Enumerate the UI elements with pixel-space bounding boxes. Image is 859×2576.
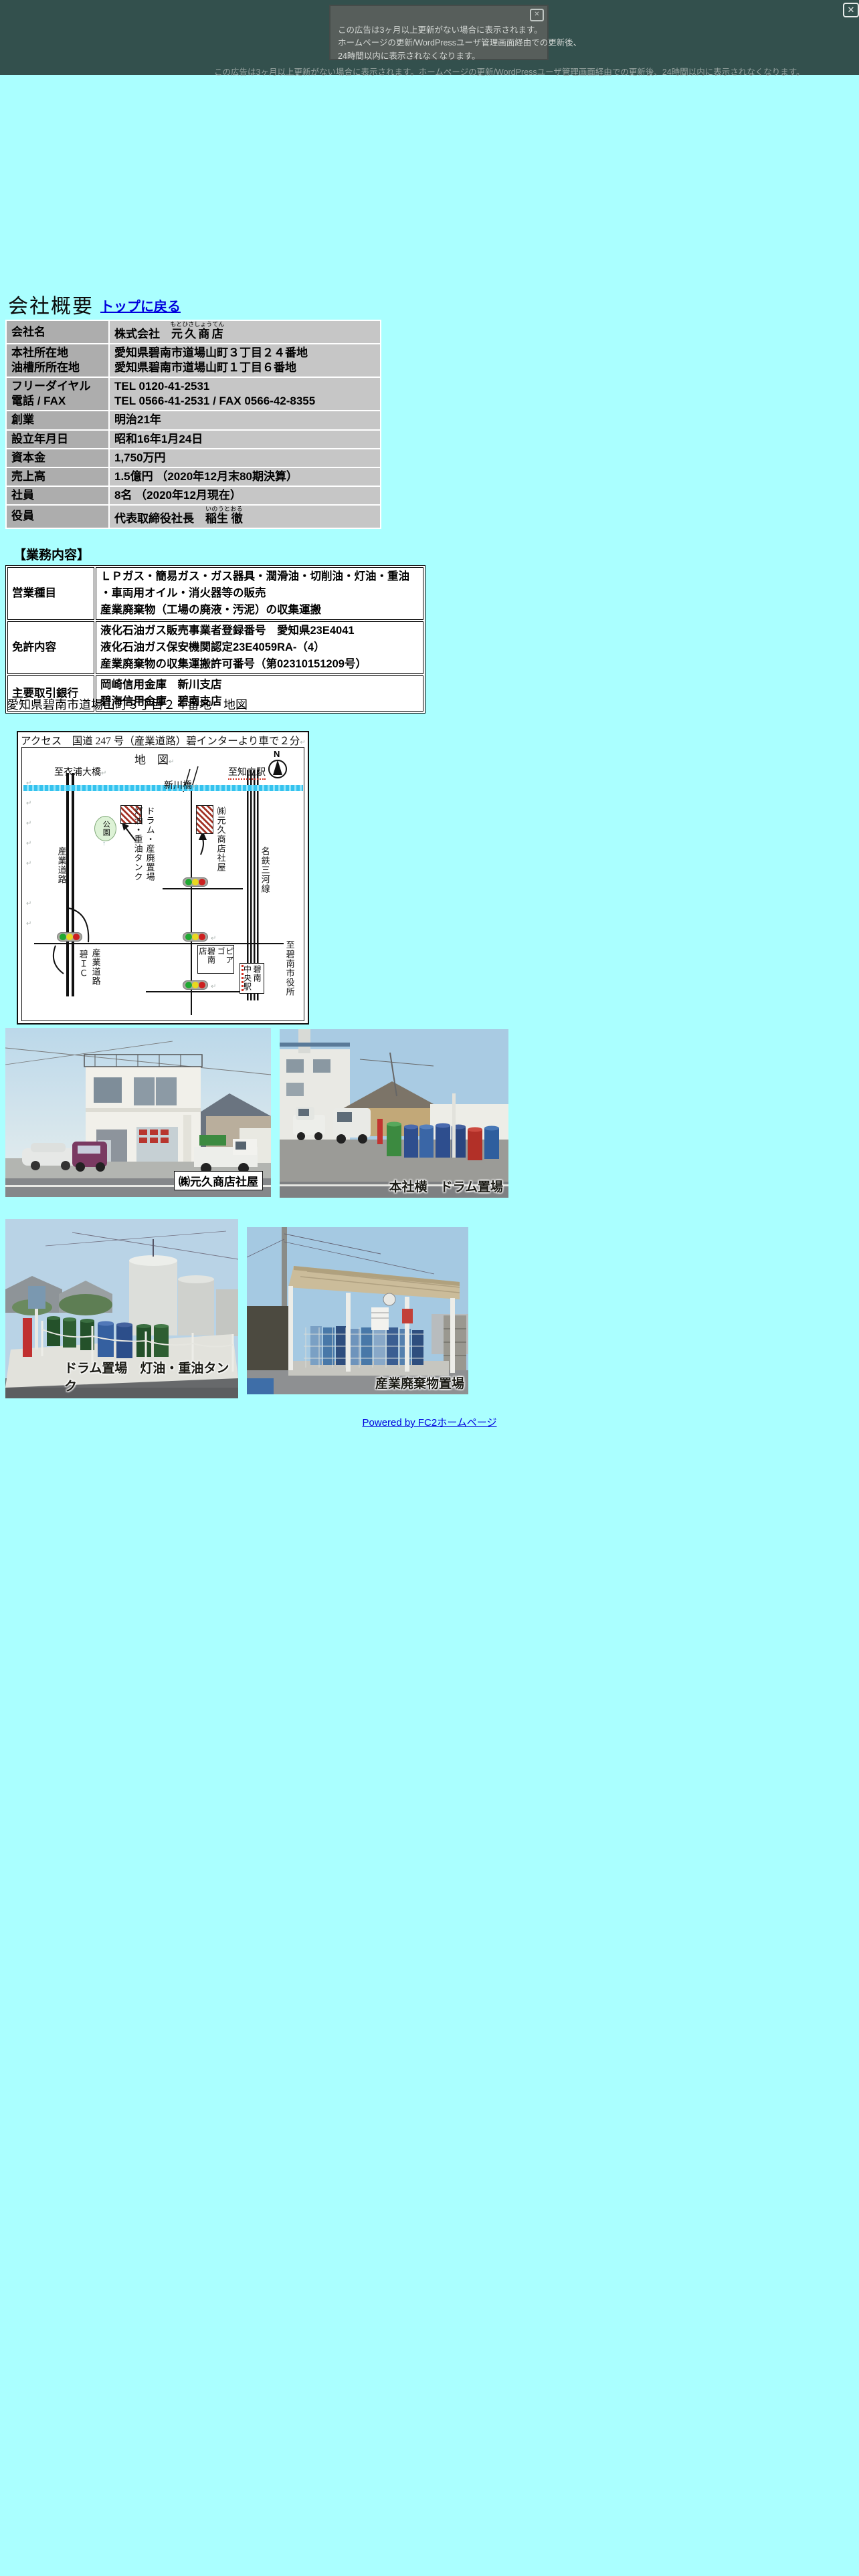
company-name: 元久商店もとひさしょうてん [171,328,224,340]
pilcrow-mark: ↵ [26,780,31,787]
company-table: 会社名 株式会社 元久商店もとひさしょうてん 本社所在地油槽所所在地 愛知県碧南… [5,320,381,529]
table-row: 売上高 1.5億円 （2020年12月末80期決算） [7,468,380,486]
map-drawing: 地 図↵ N 至衣浦大橋↵ 至知立駅 新川橋↵ ドラム・産廃置場 灯油・重油タン… [21,747,304,1021]
pilcrow-mark: ↵ [26,820,31,827]
company-prefix: 株式会社 [114,328,160,340]
table-row: 資本金 1,750万円 [7,449,380,467]
compass-north-label: N [274,749,280,759]
river-line [23,785,303,791]
back-to-top-link[interactable]: トップに戻る [100,296,181,315]
business-items-cell: ＬＰガス・簡易ガス・ガス器具・潤滑油・切削油・灯油・重油 ・車両用オイル・消火器… [96,567,423,620]
license-cell: 液化石油ガス販売事業者登録番号 愛知県23E4041 液化石油ガス保安機関認定2… [96,621,423,674]
station-label-1: 碧南 [253,965,262,992]
label-to-kinuura: 至衣浦大橋↵ [54,765,106,778]
label-meitetsu-line: 名鉄三河線 [260,847,270,903]
banner-close-icon[interactable]: ✕ [843,3,859,17]
footer: Powered by FC2ホームページ [0,1415,859,1429]
table-row: フリーダイヤル電話 / FAX TEL 0120-41-2531TEL 0566… [7,378,380,410]
row-label: 本社所在地油槽所所在地 [7,344,108,377]
photo-caption: ㈱元久商店社屋 [174,1171,263,1190]
piago-label-2: 碧南店 [198,947,215,972]
traffic-signal-icon [183,980,208,990]
photo-drum-yard: 本社横 ドラム置場 [280,1029,508,1198]
address-cell: 愛知県碧南市道場山町３丁目２４番地愛知県碧南市道場山町１丁目６番地 [110,344,380,377]
label-shinkawa-bridge: 新川橋↵ [164,778,197,792]
company-name-cell: 株式会社 元久商店もとひさしょうてん [110,321,380,343]
pilcrow-mark: ↵ [26,860,31,867]
table-row: 営業種目 ＬＰガス・簡易ガス・ガス器具・潤滑油・切削油・灯油・重油 ・車両用オイ… [7,567,423,620]
photo-caption: ドラム置場 灯油・重油タンク [64,1358,238,1394]
notice-close-icon[interactable]: ✕ [530,9,544,21]
photo-caption: 本社横 ドラム置場 [389,1177,503,1195]
map-title: 地 図↵ [134,750,174,767]
label-tank: 灯油・重油タンク [133,807,142,897]
label-hq: ㈱元久商店社屋 [216,807,225,903]
established-cell: 昭和16年1月24日 [110,431,380,448]
row-label: 設立年月日 [7,431,108,448]
notice-line-2: ホームページの更新/WordPressユーザ管理画面経由での更新後、 [338,37,581,49]
label-to-city-hall: 至碧南市役所 [285,940,294,1007]
row-label: 創業 [7,411,108,429]
ad-notice-box: ✕ この広告は3ヶ月以上更新がない場合に表示されます。 ホームページの更新/Wo… [329,5,549,60]
officer-name: 稲生 徹いのうとおる [205,512,243,525]
park-label: 公園 [102,821,110,837]
map-address-line: 愛知県碧南市道場山町３丁目２４番地 地図 [7,695,248,713]
founded-cell: 明治21年 [110,411,380,429]
photo-waste-shed: 産業廃棄物置場 [247,1227,468,1394]
table-row: 社員 8名 （2020年12月現在） [7,487,380,504]
row-label: 会社名 [7,321,108,343]
page-title: 会社概要 [8,290,94,319]
row-label: 役員 [7,506,108,528]
pilcrow-mark: ↵ [26,800,31,807]
traffic-signal-icon [183,877,208,887]
row-label: 資本金 [7,449,108,467]
piago-label-1: ピアゴ [217,947,233,972]
officer-cell: 代表取締役社長 稲生 徹いのうとおる [110,506,380,528]
row-label: 売上高 [7,468,108,486]
sales-cell: 1.5億円 （2020年12月末80期決算） [110,468,380,486]
ad-notice-text: この広告は3ヶ月以上更新がない場合に表示されます。 ホームページの更新/Word… [338,24,581,63]
pilcrow-mark: ↵ [26,900,31,907]
phone-cell: TEL 0120-41-2531TEL 0566-41-2531 / FAX 0… [110,378,380,410]
row-label: 営業種目 [7,567,94,620]
table-row: 役員 代表取締役社長 稲生 徹いのうとおる [7,506,380,528]
business-table: 営業種目 ＬＰガス・簡易ガス・ガス器具・潤滑油・切削油・灯油・重油 ・車両用オイ… [5,565,425,714]
powered-by-link[interactable]: Powered by FC2ホームページ [363,1417,497,1428]
label-heki-ic: 碧ＩＣ [78,950,88,990]
label-drum-yard: ドラム・産廃置場 [145,807,155,897]
park-arrow: ↑ [102,840,106,847]
hq-building-block [196,805,213,834]
ad-banner: ✕ ✕ この広告は3ヶ月以上更新がない場合に表示されます。 ホームページの更新/… [0,0,859,75]
staff-cell: 8名 （2020年12月現在） [110,487,380,504]
label-sangyo-road-lower: 産業道路 [91,948,100,1005]
table-row: 免許内容 液化石油ガス販売事業者登録番号 愛知県23E4041 液化石油ガス保安… [7,621,423,674]
row-label: 免許内容 [7,621,94,674]
photo-tank-yard: ドラム置場 灯油・重油タンク [5,1219,238,1398]
ad-bottom-note: この広告は3ヶ月以上更新がない場合に表示されます。ホームページの更新/WordP… [214,65,805,78]
table-row: 本社所在地油槽所所在地 愛知県碧南市道場山町３丁目２４番地愛知県碧南市道場山町１… [7,344,380,377]
pilcrow-mark: ↵ [26,840,31,847]
map-access-line: アクセス 国道 247 号（産業道路）碧インターより車で２分↵ [21,733,306,748]
station-rail-mark [242,965,244,992]
row-label: フリーダイヤル電話 / FAX [7,378,108,410]
capital-cell: 1,750万円 [110,449,380,467]
business-heading: 【業務内容】 [13,545,90,563]
traffic-signal-icon [183,932,208,942]
label-sangyo-road-upper: 産業道路 [57,847,66,903]
table-row: 会社名 株式会社 元久商店もとひさしょうてん [7,321,380,343]
table-row: 設立年月日 昭和16年1月24日 [7,431,380,448]
pilcrow-mark: ↵ [211,983,216,990]
traffic-signal-icon [57,932,82,942]
station-box: 碧南 中央駅 [240,963,264,994]
compass-icon [268,760,287,778]
notice-line-1: この広告は3ヶ月以上更新がない場合に表示されます。 [338,24,581,37]
station-label-2: 中央駅 [243,965,252,992]
notice-line-3: 24時間以内に表示されなくなります。 [338,50,581,63]
pilcrow-mark: ↵ [26,920,31,928]
table-row: 創業 明治21年 [7,411,380,429]
piago-store-box: ピアゴ 碧南店 [197,945,234,974]
photo-head-office: ㈱元久商店社屋 [5,1028,271,1197]
pilcrow-mark: ↵ [211,935,216,942]
park-ellipse: 公園 [94,816,116,841]
access-map: アクセス 国道 247 号（産業道路）碧インターより車で２分↵ [17,731,309,1025]
row-label: 社員 [7,487,108,504]
photo-caption: 産業廃棄物置場 [375,1374,464,1392]
label-to-chiryu: 至知立駅 [228,765,266,778]
